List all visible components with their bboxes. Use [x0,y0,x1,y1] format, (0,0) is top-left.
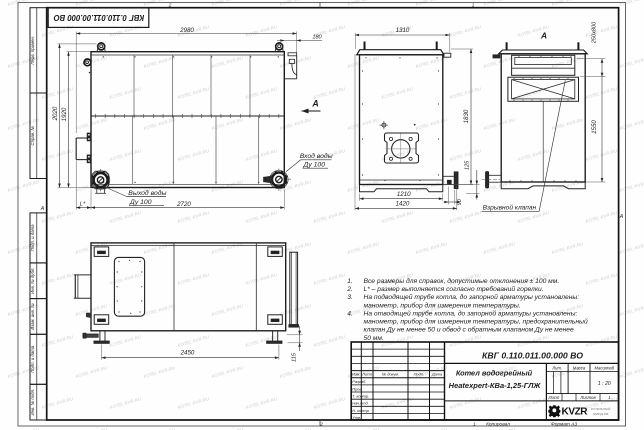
svg-text:Масштаб: Масштаб [595,366,615,371]
svg-text:КОТЕЛЬНЫЙ: КОТЕЛЬНЫЙ [591,407,611,411]
svg-text:На подводящей трубе котла, до: На подводящей трубе котла, до запорной а… [364,293,580,301]
svg-text:Лист: Лист [361,372,373,377]
svg-text:Лист: Лист [548,395,560,400]
svg-text:Взам. инв. №: Взам. инв. № [30,303,35,330]
svg-text:Справ. №: Справ. № [30,126,35,146]
svg-text:2: 2 [319,421,323,426]
svg-text:Дата: Дата [431,372,443,377]
svg-text:Ду 100: Ду 100 [129,199,152,206]
svg-text:2450: 2450 [180,350,195,357]
svg-text:Н. контр.: Н. контр. [352,408,370,413]
svg-text:90: 90 [457,198,463,205]
svg-text:А: А [311,99,318,109]
svg-text:Разраб.: Разраб. [352,379,366,384]
svg-text:KVZR: KVZR [562,407,589,418]
svg-text:КВГ 0.110.011.00.000 ВО: КВГ 0.110.011.00.000 ВО [482,351,583,361]
svg-text:1830: 1830 [463,109,470,123]
svg-text:А: А [619,214,624,220]
svg-text:Формат А3: Формат А3 [551,421,578,427]
svg-text:Изм.: Изм. [352,372,360,377]
svg-text:Heatexpert-КВа-1,25-ГЛЖ: Heatexpert-КВа-1,25-ГЛЖ [449,381,542,390]
svg-text:1310: 1310 [396,27,410,34]
svg-text:манометр, прибор для измерения: манометр, прибор для измерения температу… [364,301,521,309]
svg-text:1 : 20: 1 : 20 [598,381,611,387]
svg-text:115: 115 [292,352,298,362]
svg-text:№ докум.: № докум. [382,372,399,377]
svg-text:Подп. и дата: Подп. и дата [30,345,35,373]
svg-text:манометр, прибор для измерения: манометр, прибор для измерения температу… [364,318,588,326]
svg-text:Подп. и дата: Подп. и дата [30,224,35,252]
svg-text:4.: 4. [347,310,353,317]
svg-text:1: 1 [472,3,475,8]
svg-text:Утв.: Утв. [352,415,361,420]
svg-text:50 мм.: 50 мм. [364,335,384,342]
svg-text:1: 1 [608,395,610,400]
svg-text:2720: 2720 [176,201,191,208]
svg-text:Т. контр.: Т. контр. [352,394,369,399]
svg-text:Все размеры для справок, допус: Все размеры для справок, допустимые откл… [364,277,560,285]
svg-text:1.: 1. [347,278,353,285]
svg-text:250x800: 250x800 [592,21,598,44]
svg-text:А: А [40,206,45,212]
svg-text:Котел водогрейный: Котел водогрейный [456,368,533,377]
svg-text:Вход воды: Вход воды [300,152,333,160]
svg-text:180: 180 [312,34,322,40]
svg-text:1210: 1210 [397,191,411,198]
svg-text:125: 125 [464,160,470,170]
svg-text:Подп.: Подп. [414,372,424,377]
svg-text:2980: 2980 [179,27,194,34]
svg-text:2.: 2. [346,286,353,293]
svg-text:2020: 2020 [52,106,59,121]
svg-text:Ду 100: Ду 100 [303,162,326,169]
svg-text:3.: 3. [347,294,353,301]
svg-text:Перв. примен.: Перв. примен. [30,36,35,65]
svg-text:L*: L* [80,202,86,208]
svg-text:На отводящей трубе котла, до з: На отводящей трубе котла, до запорной ар… [364,309,578,317]
svg-text:2: 2 [168,3,172,8]
svg-text:1420: 1420 [396,201,410,208]
svg-text:1: 1 [473,421,476,427]
svg-text:1920: 1920 [61,107,68,121]
svg-text:Выход воды: Выход воды [128,189,166,197]
svg-text:Копировал: Копировал [486,421,510,427]
svg-text:Взрывной клапан: Взрывной клапан [483,203,537,211]
svg-text:Пров.: Пров. [352,386,362,391]
svg-text:L* – размер выполняется соглас: L* – размер выполняется согласно требова… [364,285,544,293]
svg-text:ЗАВОД.РФ: ЗАВОД.РФ [593,412,609,416]
svg-text:КВГ 0.110.011.00.000 ВО: КВГ 0.110.011.00.000 ВО [54,13,145,22]
svg-text:Инв. № подл.: Инв. № подл. [30,389,35,416]
svg-text:клапан Ду не менее 50 и обвод: клапан Ду не менее 50 и обвод с обратным… [364,326,575,334]
svg-text:Инв. № дубл.: Инв. № дубл. [30,268,35,294]
svg-text:1550: 1550 [591,120,598,134]
svg-text:А: А [540,31,547,41]
svg-text:Нач.отд.: Нач.отд. [352,401,368,406]
svg-text:Масса: Масса [573,366,586,371]
svg-text:Лит.: Лит. [551,366,562,371]
svg-text:Листов: Листов [579,395,596,400]
